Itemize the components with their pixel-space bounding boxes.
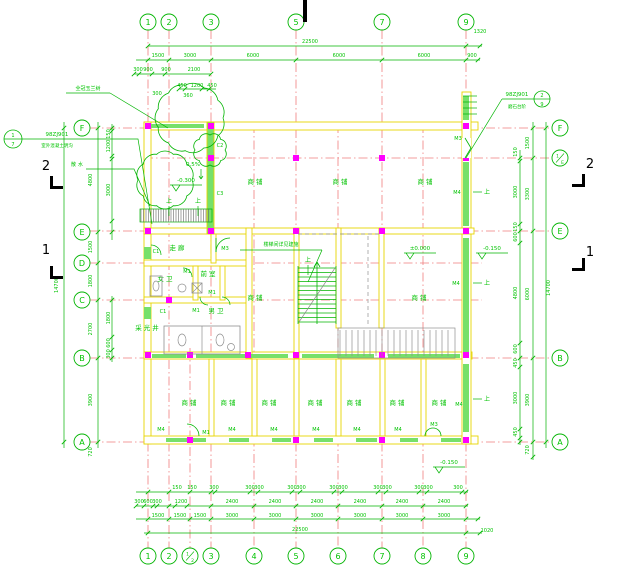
wall xyxy=(252,359,257,436)
window xyxy=(463,162,469,226)
dim-label: 4800 xyxy=(513,287,519,300)
window xyxy=(314,438,333,442)
grid-bubble-label: 9 xyxy=(463,552,468,561)
room-label: 女卫 xyxy=(158,274,175,283)
dim-label: 1500 xyxy=(525,137,531,150)
room-label: 商铺 xyxy=(248,177,265,186)
dim-label: 450 xyxy=(207,83,217,89)
room-label: 商铺 xyxy=(308,398,325,407)
dim-label: 14700 xyxy=(54,277,60,293)
grid-bubble-label: 2 xyxy=(166,552,171,561)
detail-code: 98ZJ901 xyxy=(46,132,69,138)
dim-label: 1500 xyxy=(194,513,207,519)
tag-label: C1 xyxy=(160,309,167,315)
room-label: 商铺 xyxy=(182,398,199,407)
window xyxy=(229,438,249,442)
wall xyxy=(294,359,299,436)
window xyxy=(144,307,151,319)
dim-label: 1500 xyxy=(152,513,165,519)
column xyxy=(187,437,193,443)
section-number: 1 xyxy=(586,245,594,260)
dim-label: 600 xyxy=(513,232,519,242)
dim-label: 900 xyxy=(161,67,171,73)
wall xyxy=(220,266,225,300)
grid-bubble-label: F xyxy=(558,124,563,133)
dim-label: 3000 xyxy=(311,513,324,519)
fixture xyxy=(178,334,186,346)
path xyxy=(433,428,441,436)
grid-bubble-label: 4 xyxy=(251,552,256,561)
path xyxy=(187,424,199,436)
up-label: 上 xyxy=(484,188,490,196)
dim-label: 900 xyxy=(143,67,153,73)
level-value: ±0.000 xyxy=(410,246,431,252)
tag-label: M4 xyxy=(455,402,463,408)
tag-label: C2 xyxy=(217,143,224,149)
column xyxy=(145,352,151,358)
fixture xyxy=(216,334,224,346)
dim-label: 3900 xyxy=(88,394,94,407)
window xyxy=(463,238,469,352)
floor-plan-sheet: 2250013201500300060006000600090030090090… xyxy=(0,0,627,574)
door-gap xyxy=(216,437,227,443)
tag-label: M1 xyxy=(202,430,210,436)
dim-label: 300 xyxy=(453,485,463,491)
floor-plan-canvas: 2250013201500300060006000600090030090090… xyxy=(0,0,627,574)
dimension-lines xyxy=(62,44,548,535)
tag-label: M4 xyxy=(394,427,402,433)
dim-label: 1500 xyxy=(88,241,94,254)
dim-label: 300 xyxy=(338,485,348,491)
grid-bubble-label: 1 xyxy=(145,18,150,27)
column xyxy=(293,352,299,358)
grid-bubble-label: 5 xyxy=(293,552,298,561)
dim-label: 900 xyxy=(467,53,477,59)
dim-label: 1320 xyxy=(474,29,487,35)
grid-bubble-label: 1 xyxy=(556,154,559,160)
column xyxy=(463,352,469,358)
dim-label: 150 xyxy=(106,129,112,139)
up-label: 上 xyxy=(484,279,490,287)
grid-bubble-label: 1 xyxy=(186,552,189,558)
dim-label: 6000 xyxy=(418,53,431,59)
path xyxy=(172,185,180,191)
path xyxy=(478,253,486,259)
tag-label: M4 xyxy=(353,427,361,433)
fixture xyxy=(153,281,159,291)
dim-label: 450 xyxy=(177,83,187,89)
tag-label: M1 xyxy=(183,269,191,275)
grid-bubble-label: 5 xyxy=(293,18,298,27)
dim-label: 300 xyxy=(254,485,264,491)
line xyxy=(317,262,320,267)
detail-desc: 磨石台阶 xyxy=(508,103,526,110)
column xyxy=(463,123,469,129)
column xyxy=(208,123,214,129)
detail-desc: 室外混凝土明沟 xyxy=(41,142,73,149)
window-wall xyxy=(207,122,214,234)
wall xyxy=(336,228,341,328)
dim-label: 2400 xyxy=(269,499,282,505)
room-label: 走廊 xyxy=(170,243,187,252)
column xyxy=(293,437,299,443)
dim-label: 3000 xyxy=(354,513,367,519)
grid-bubble-label: 2 xyxy=(166,18,171,27)
section-number: 2 xyxy=(586,157,594,172)
wall xyxy=(209,359,214,436)
room-label: 商铺 xyxy=(221,398,238,407)
door-gap xyxy=(153,437,164,443)
path xyxy=(435,467,443,473)
grid-bubble-label: 3 xyxy=(208,552,213,561)
column xyxy=(166,297,172,303)
dim-label: 1200 xyxy=(106,140,112,153)
dim-label: 1200 xyxy=(175,499,188,505)
path xyxy=(406,253,414,259)
window xyxy=(152,354,186,358)
column xyxy=(463,228,469,234)
dim-label: 450 xyxy=(513,427,519,437)
wall xyxy=(379,228,384,328)
window xyxy=(166,438,206,442)
window xyxy=(463,364,469,432)
grid-bubble-label: 1 xyxy=(145,552,150,561)
dim-label: 3000 xyxy=(184,53,197,59)
window xyxy=(196,354,288,358)
room-label: 商铺 xyxy=(333,177,350,186)
dim-label: 6000 xyxy=(333,53,346,59)
wall xyxy=(421,359,426,436)
dim-label: 360 xyxy=(183,93,193,99)
slope-label: 0.5% xyxy=(186,162,200,168)
rect xyxy=(572,184,585,187)
grid-bubble-label: B xyxy=(79,354,85,363)
dim-label: 150 xyxy=(172,485,182,491)
dim-label: 14700 xyxy=(546,280,552,296)
dim-label: 720 xyxy=(525,445,531,455)
wall xyxy=(144,122,151,232)
room-label: 采光井 xyxy=(135,323,161,332)
dim-label: 2400 xyxy=(354,499,367,505)
wall xyxy=(144,260,252,266)
up-label: 上 xyxy=(166,197,172,205)
room-label: 商铺 xyxy=(412,293,429,302)
dim-label: 300 xyxy=(133,67,143,73)
dim-label: 2400 xyxy=(396,499,409,505)
dim-label: 3000 xyxy=(269,513,282,519)
tag-label: M3 xyxy=(430,422,438,428)
dim-label: 4800 xyxy=(88,174,94,187)
grid-bubble-label: 6 xyxy=(335,552,340,561)
dim-label: 600 xyxy=(513,344,519,354)
dim-label: 300 xyxy=(382,485,392,491)
room-label: 商铺 xyxy=(347,398,364,407)
dim-label: 3300 xyxy=(525,188,531,201)
rect xyxy=(50,276,63,279)
column xyxy=(208,155,214,161)
column xyxy=(145,228,151,234)
grid-bubble-label: C xyxy=(79,296,85,305)
detail-sheet: 9 xyxy=(540,102,543,108)
dim-label: 2400 xyxy=(226,499,239,505)
dim-label: 22500 xyxy=(302,39,318,45)
tag-label: M3 xyxy=(454,136,462,142)
dim-label: 2700 xyxy=(88,323,94,336)
dim-label: 6000 xyxy=(525,288,531,301)
dim-label: 600 xyxy=(106,338,112,348)
stair-note: 楼梯间详见建施 xyxy=(263,241,298,248)
section-cut-bar xyxy=(303,0,307,22)
column xyxy=(379,437,385,443)
dim-label: 300 xyxy=(209,485,219,491)
column xyxy=(145,123,151,129)
room-label: 商铺 xyxy=(390,398,407,407)
grid-bubble-label: 3 xyxy=(208,18,213,27)
dim-label: 720 xyxy=(88,447,94,457)
rect xyxy=(50,186,63,189)
dim-label: 300 xyxy=(423,485,433,491)
room-label: 男卫 xyxy=(209,307,226,315)
rect xyxy=(572,268,585,271)
up-label: 上 xyxy=(305,256,311,264)
grid-bubble-label: E xyxy=(561,160,564,166)
fixture xyxy=(228,344,235,351)
column xyxy=(293,155,299,161)
wall xyxy=(144,352,151,444)
door-gap xyxy=(343,437,354,443)
room-label: 前室 xyxy=(201,269,218,278)
section-marks: 2121 xyxy=(42,0,594,279)
dim-label: 2400 xyxy=(311,499,324,505)
door-gap xyxy=(259,437,270,443)
dim-label: 300 xyxy=(106,349,112,359)
grid-bubble-label: B xyxy=(557,354,563,363)
dim-label: 1800 xyxy=(106,312,112,325)
grid-bubble-label: 7 xyxy=(379,18,384,27)
dim-label: 150 xyxy=(513,147,519,157)
column xyxy=(379,228,385,234)
dim-label: 22500 xyxy=(292,527,308,533)
up-label: 上 xyxy=(195,197,201,205)
dim-label: 1500 xyxy=(152,53,165,59)
up-label: 上 xyxy=(484,395,490,403)
dim-label: 1800 xyxy=(88,275,94,288)
wall xyxy=(380,359,385,436)
stair xyxy=(298,262,336,324)
dim-label: 3900 xyxy=(525,394,531,407)
detail-sheet: 7 xyxy=(11,142,14,148)
tag-label: M4 xyxy=(157,427,165,433)
room-label: 商铺 xyxy=(248,293,265,302)
window xyxy=(272,438,291,442)
dim-label: 6000 xyxy=(247,53,260,59)
grid-bubble-label: 8 xyxy=(420,552,425,561)
grid-bubble-label: 2 xyxy=(191,558,194,564)
tag-label: M4 xyxy=(453,190,461,196)
dim-label: 2400 xyxy=(438,499,451,505)
tag-label: M4 xyxy=(452,281,460,287)
dim-label: 1500 xyxy=(174,513,187,519)
section-number: 1 xyxy=(42,243,50,258)
grid-bubble-label: F xyxy=(80,124,85,133)
level-value: -0.150 xyxy=(483,246,501,252)
column xyxy=(463,437,469,443)
tag-label: M1 xyxy=(192,308,200,314)
dim-label: 3000 xyxy=(226,513,239,519)
grid-bubble-label: E xyxy=(79,228,84,237)
path xyxy=(86,169,150,206)
room-label: 商铺 xyxy=(432,398,449,407)
door-gap xyxy=(301,437,312,443)
detail-number: 1 xyxy=(11,133,14,139)
detail-code: 98ZJ901 xyxy=(506,92,529,98)
level-value: -0.150 xyxy=(440,460,458,466)
tag-label: M4 xyxy=(228,427,236,433)
dim-label: 450 xyxy=(513,358,519,368)
wall xyxy=(336,359,341,436)
apron-note: 散水 xyxy=(71,161,85,168)
tag-label: M1 xyxy=(208,290,216,296)
dim-label: 150 xyxy=(513,222,519,232)
wall xyxy=(246,228,252,358)
column xyxy=(293,228,299,234)
dim-label: 300 xyxy=(152,499,162,505)
tag-label: M4 xyxy=(270,427,278,433)
window xyxy=(400,438,418,442)
window xyxy=(441,438,461,442)
dim-label: 3000 xyxy=(106,184,112,197)
tag-label: C1 xyxy=(153,249,160,255)
column xyxy=(379,155,385,161)
grid-bubble-label: 9 xyxy=(463,18,468,27)
tag-label: C3 xyxy=(217,191,224,197)
grid-bubble-label: A xyxy=(557,438,563,447)
path xyxy=(92,139,152,224)
room-label: 商铺 xyxy=(262,398,279,407)
dim-label: 150 xyxy=(187,485,197,491)
tree-note: 全冠玉兰树 xyxy=(75,85,100,92)
detail-number: 2 xyxy=(540,93,543,99)
line xyxy=(110,93,168,128)
grid-bubble-label: 7 xyxy=(379,552,384,561)
grid-bubble-label: E xyxy=(557,227,562,236)
column xyxy=(245,352,251,358)
room-label: 商铺 xyxy=(418,177,435,186)
window xyxy=(144,247,151,259)
column xyxy=(208,228,214,234)
dim-label: 1020 xyxy=(481,528,494,534)
wall xyxy=(144,228,474,234)
tag-label: M4 xyxy=(312,427,320,433)
door-gap xyxy=(387,437,398,443)
dim-label: 3000 xyxy=(513,186,519,199)
dim-label: 300 xyxy=(296,485,306,491)
grid-bubble-label: A xyxy=(79,438,85,447)
dim-label: 3000 xyxy=(513,392,519,405)
column xyxy=(187,352,193,358)
dim-label: 3000 xyxy=(396,513,409,519)
tag-label: M3 xyxy=(221,246,229,252)
dim-label: 300 xyxy=(152,91,162,97)
door-gap xyxy=(428,437,439,443)
outdoor-steps xyxy=(298,234,455,358)
grid-bubble-label: D xyxy=(79,259,85,268)
dim-label: 3000 xyxy=(438,513,451,519)
level-value: -0.300 xyxy=(177,178,195,184)
window xyxy=(356,438,377,442)
wall xyxy=(211,234,216,263)
section-number: 2 xyxy=(42,159,50,174)
dim-label: 2100 xyxy=(188,67,201,73)
fixture xyxy=(178,284,186,292)
